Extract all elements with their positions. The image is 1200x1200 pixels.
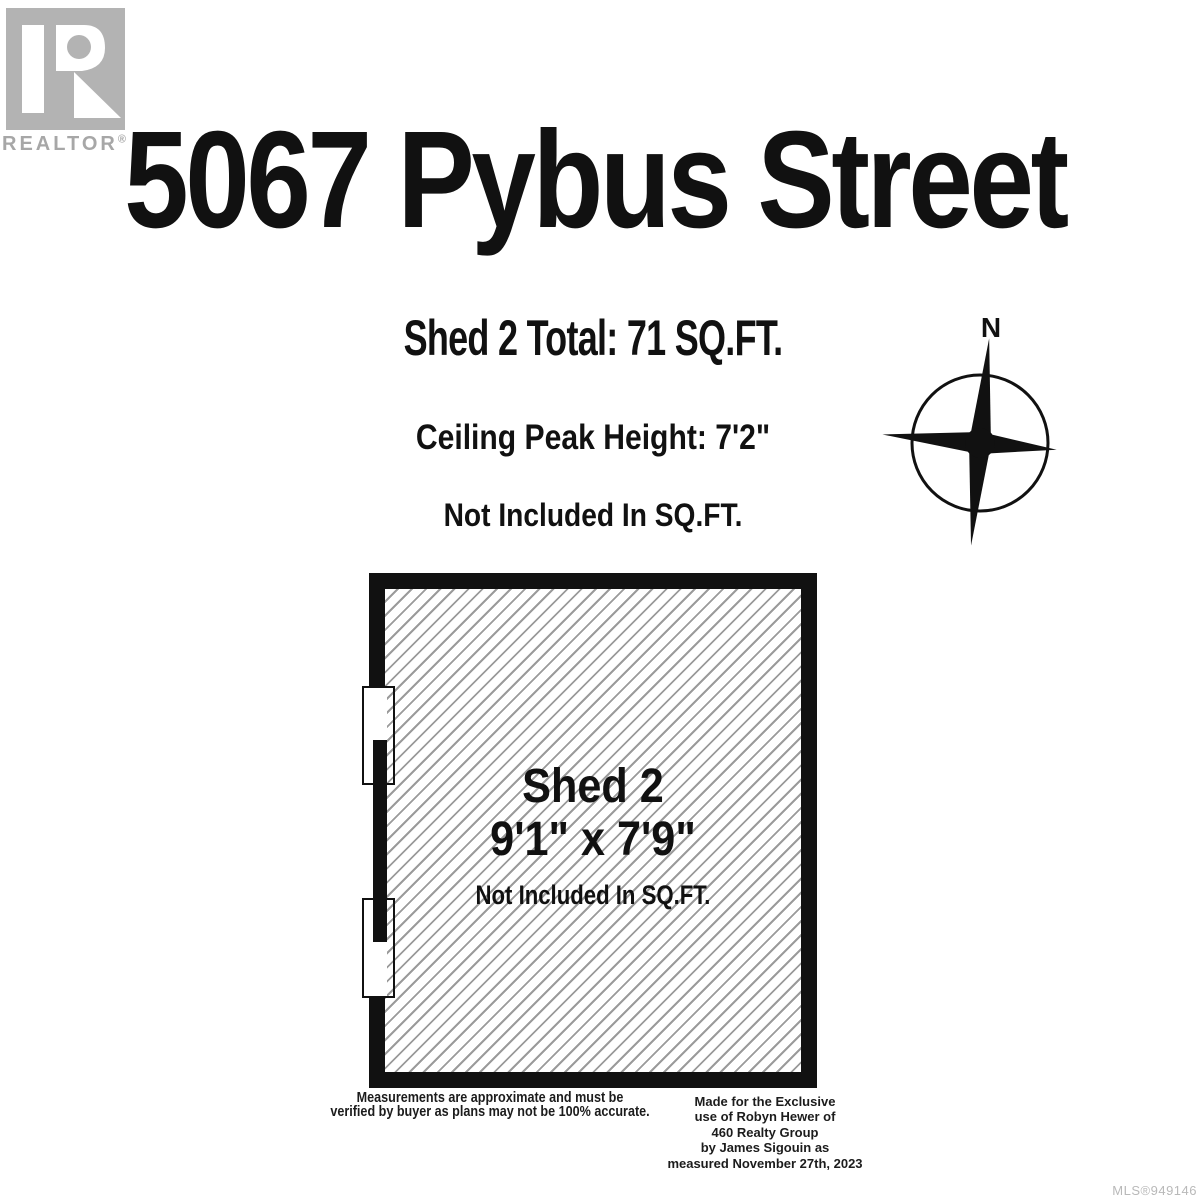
compass-north-label: N <box>981 312 1001 343</box>
disclaimer-line-2: verified by buyer as plans may not be 10… <box>322 1105 658 1119</box>
attribution-line-3: 460 Realty Group <box>640 1125 890 1140</box>
room-labels: Shed 2 9'1" x 7'9" Not Included In SQ.FT… <box>385 762 801 909</box>
attribution-line-5: measured November 27th, 2023 <box>640 1156 890 1171</box>
page-title: 5067 Pybus Street <box>95 111 1095 249</box>
attribution-note: Made for the Exclusive use of Robyn Hewe… <box>640 1094 890 1171</box>
attribution-line-1: Made for the Exclusive <box>640 1094 890 1109</box>
attribution-line-2: use of Robyn Hewer of <box>640 1109 890 1124</box>
compass-rose-icon: N <box>880 300 1080 550</box>
mls-number: MLS®949146 <box>1112 1183 1197 1198</box>
room-note-label: Not Included In SQ.FT. <box>422 882 763 909</box>
room-name-label: Shed 2 <box>406 762 780 812</box>
measurement-disclaimer: Measurements are approximate and must be… <box>322 1091 658 1119</box>
door-panel-bottom <box>362 898 395 998</box>
compass-star <box>880 330 1066 550</box>
room-dimensions-label: 9'1" x 7'9" <box>406 812 780 868</box>
attribution-line-4: by James Sigouin as <box>640 1140 890 1155</box>
